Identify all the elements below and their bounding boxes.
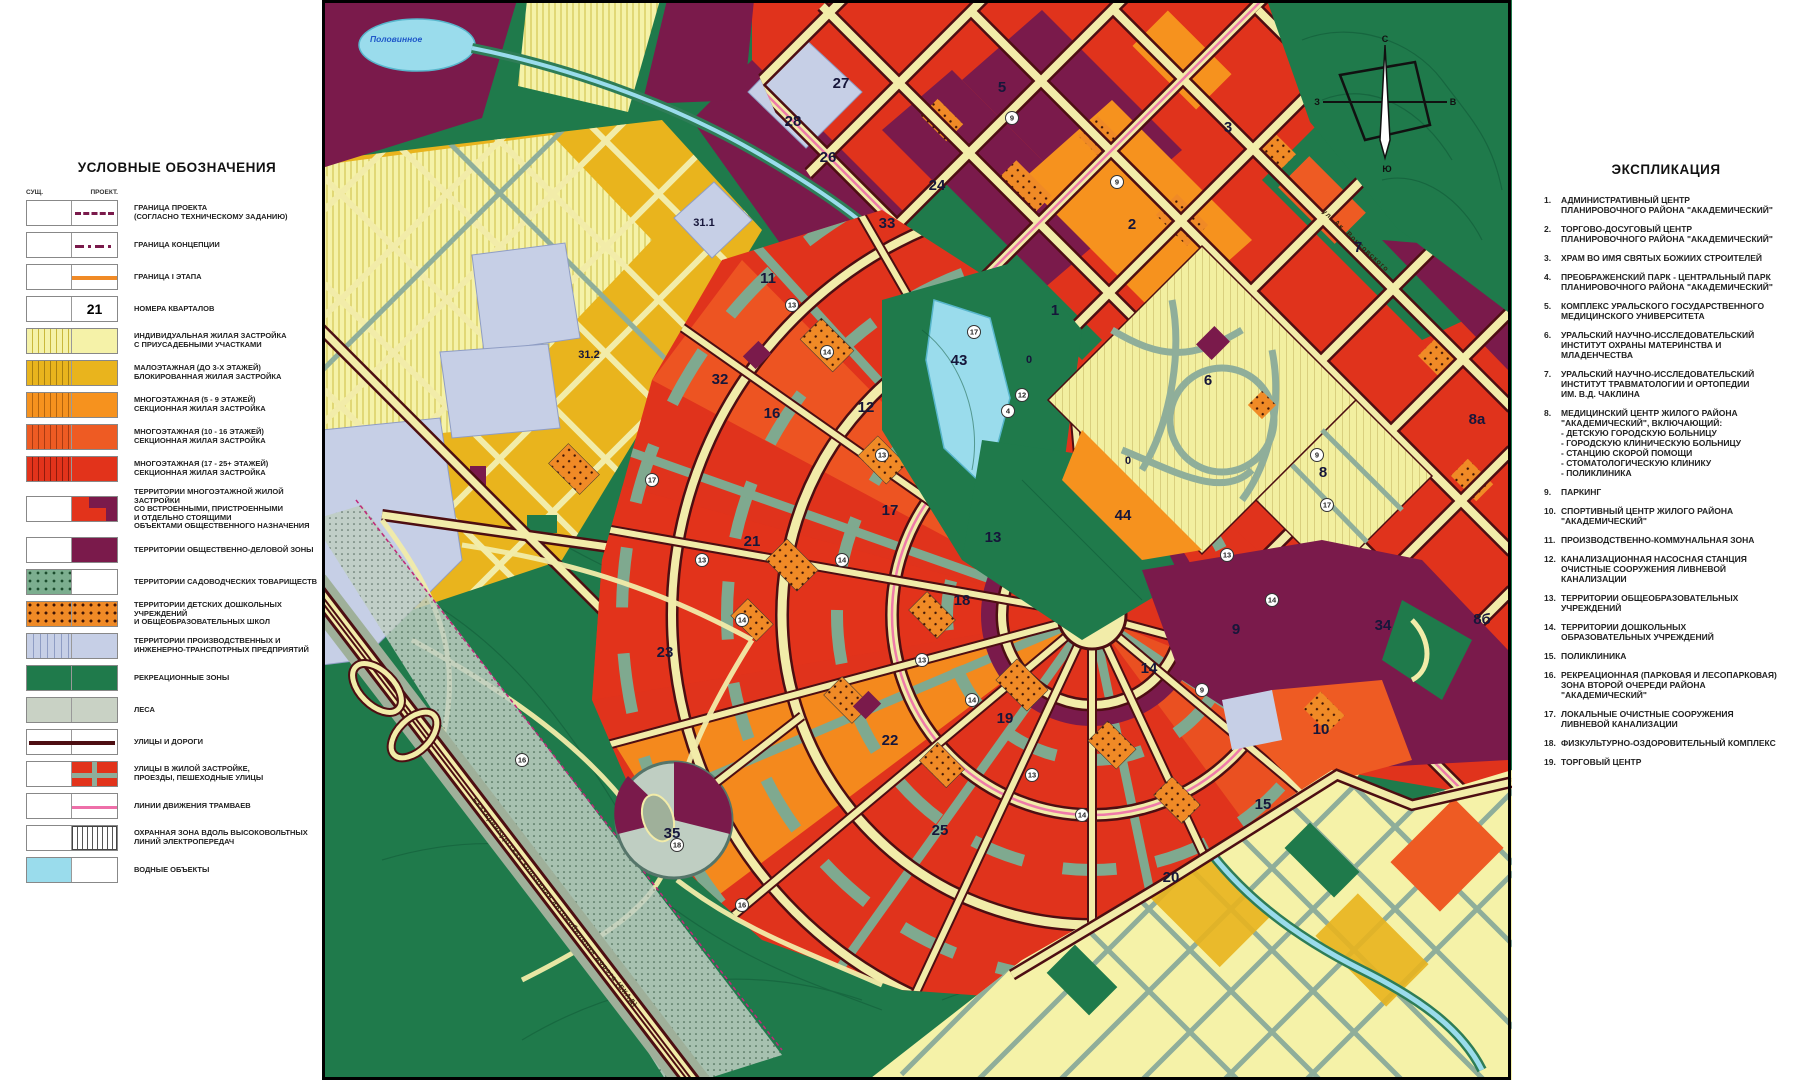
swatch-existing-half: [27, 762, 72, 786]
quarter-number-label: 43: [951, 352, 968, 369]
svg-text:16: 16: [738, 901, 746, 910]
svg-text:9: 9: [1115, 178, 1119, 187]
legend-swatch: [26, 729, 118, 755]
explication-item-number: 15.: [1544, 651, 1561, 661]
explication-item-number: 18.: [1544, 738, 1561, 748]
legend-item-label: ТЕРРИТОРИИ ОБЩЕСТВЕННО-ДЕЛОВОЙ ЗОНЫ: [134, 546, 318, 555]
swatch-project-half: [72, 329, 117, 353]
explication-item-text: ПАРКИНГ: [1561, 487, 1789, 497]
legend-item-label: НОМЕРА КВАРТАЛОВ: [134, 305, 318, 314]
legend-list: ГРАНИЦА ПРОЕКТА (СОГЛАСНО ТЕХНИЧЕСКОМУ З…: [0, 200, 322, 883]
quarter-number-label: 8б: [1473, 611, 1491, 628]
circle-marker: 9: [1196, 684, 1209, 697]
legend-item-label: УЛИЦЫ И ДОРОГИ: [134, 738, 318, 747]
swatch-existing-half: [27, 497, 72, 521]
legend-item-label: ТЕРРИТОРИИ ПРОИЗВОДСТВЕННЫХ И ИНЖЕНЕРНО-…: [134, 637, 318, 654]
swatch-sample-number: [72, 858, 117, 882]
quarter-number-label: 34: [1375, 617, 1392, 634]
explication-item-number: 17.: [1544, 709, 1561, 729]
circle-marker: 4: [1002, 405, 1015, 418]
explication-item-text: ПОЛИКЛИНИКА: [1561, 651, 1789, 661]
legend-item: РЕКРЕАЦИОННЫЕ ЗОНЫ: [26, 665, 318, 691]
quarter-number-label: 8: [1319, 464, 1327, 481]
swatch-project-half: [72, 538, 117, 562]
legend-item-label: ЛИНИИ ДВИЖЕНИЯ ТРАМВАЕВ: [134, 802, 318, 811]
circle-marker: 14: [1266, 594, 1279, 607]
explication-item: 8. МЕДИЦИНСКИЙ ЦЕНТР ЖИЛОГО РАЙОНА "АКАД…: [1544, 408, 1792, 478]
legend-item: ЛЕСА: [26, 697, 318, 723]
swatch-existing-half: [27, 329, 72, 353]
legend-item: ТЕРРИТОРИИ ПРОИЗВОДСТВЕННЫХ И ИНЖЕНЕРНО-…: [26, 633, 318, 659]
explication-item-text: УРАЛЬСКИЙ НАУЧНО-ИССЛЕДОВАТЕЛЬСКИЙ ИНСТИ…: [1561, 330, 1789, 360]
swatch-sample-number: [72, 457, 117, 481]
compass-west-label: З: [1314, 97, 1320, 107]
quarter-number-label: 24: [929, 177, 946, 194]
legend-item-label: МНОГОЭТАЖНАЯ (17 - 25+ ЭТАЖЕЙ) СЕКЦИОННА…: [134, 460, 318, 477]
swatch-existing-half: [27, 393, 72, 417]
legend-item-label: МНОГОЭТАЖНАЯ (10 - 16 ЭТАЖЕЙ) СЕКЦИОННАЯ…: [134, 428, 318, 445]
legend-item-label: ИНДИВИДУАЛЬНАЯ ЖИЛАЯ ЗАСТРОЙКА С ПРИУСАД…: [134, 332, 318, 349]
legend-item: ЛИНИИ ДВИЖЕНИЯ ТРАМВАЕВ: [26, 793, 318, 819]
explication-item: 18. ФИЗКУЛЬТУРНО-ОЗДОРОВИТЕЛЬНЫЙ КОМПЛЕК…: [1544, 738, 1792, 748]
explication-item-text: СПОРТИВНЫЙ ЦЕНТР ЖИЛОГО РАЙОНА "АКАДЕМИЧ…: [1561, 506, 1789, 526]
legend-swatch: [26, 761, 118, 787]
legend-swatch: [26, 569, 118, 595]
svg-text:9: 9: [1010, 114, 1014, 123]
circle-marker: 13: [1026, 769, 1039, 782]
explication-item-text: КОМПЛЕКС УРАЛЬСКОГО ГОСУДАРСТВЕННОГО МЕД…: [1561, 301, 1789, 321]
explication-item-text: АДМИНИСТРАТИВНЫЙ ЦЕНТР ПЛАНИРОВОЧНОГО РА…: [1561, 195, 1789, 215]
svg-text:16: 16: [518, 756, 526, 765]
legend-item-label: ТЕРРИТОРИИ ДЕТСКИХ ДОШКОЛЬНЫХ УЧРЕЖДЕНИЙ…: [134, 601, 318, 627]
explication-item-number: 19.: [1544, 757, 1561, 767]
swatch-existing-half: [27, 794, 72, 818]
swatch-sample-number: [72, 762, 117, 786]
legend-item-label: ЛЕСА: [134, 706, 318, 715]
svg-text:18: 18: [673, 841, 681, 850]
svg-text:14: 14: [968, 696, 977, 705]
explication-item-number: 4.: [1544, 272, 1561, 292]
explication-item: 15. ПОЛИКЛИНИКА: [1544, 651, 1792, 661]
swatch-existing-half: [27, 858, 72, 882]
quarter-number-label: 7: [1354, 239, 1362, 256]
quarter-number-label: 2: [1128, 216, 1136, 233]
circle-marker: 14: [736, 614, 749, 627]
explication-item: 14. ТЕРРИТОРИИ ДОШКОЛЬНЫХ ОБРАЗОВАТЕЛЬНЫ…: [1544, 622, 1792, 642]
swatch-project-half: [72, 201, 117, 225]
legend-item: ИНДИВИДУАЛЬНАЯ ЖИЛАЯ ЗАСТРОЙКА С ПРИУСАД…: [26, 328, 318, 354]
swatch-existing-half: [27, 265, 72, 289]
swatch-existing-half: [27, 538, 72, 562]
legend-item: УЛИЦЫ И ДОРОГИ: [26, 729, 318, 755]
quarter-number-label: 17: [882, 502, 899, 519]
explication-item-number: 3.: [1544, 253, 1561, 263]
swatch-sample-number: [72, 497, 117, 521]
swatch-existing-half: [27, 361, 72, 385]
swatch-existing-half: [27, 666, 72, 690]
quarter-number-label: 16: [764, 405, 781, 422]
svg-text:9: 9: [1200, 686, 1204, 695]
legend-item-label: ОХРАННАЯ ЗОНА ВДОЛЬ ВЫСОКОВОЛЬТНЫХ ЛИНИЙ…: [134, 829, 318, 846]
explication-item-text: ТОРГОВЫЙ ЦЕНТР: [1561, 757, 1789, 767]
swatch-sample-number: [72, 265, 117, 289]
svg-text:14: 14: [1268, 596, 1277, 605]
legend-item-label: ВОДНЫЕ ОБЪЕКТЫ: [134, 866, 318, 875]
legend-item: ГРАНИЦА ПРОЕКТА (СОГЛАСНО ТЕХНИЧЕСКОМУ З…: [26, 200, 318, 226]
swatch-existing-half: [27, 634, 72, 658]
explication-item-number: 14.: [1544, 622, 1561, 642]
quarter-number-label: 14: [1141, 660, 1158, 677]
swatch-sample-number: [72, 425, 117, 449]
swatch-project-half: [72, 265, 117, 289]
circle-marker: 14: [821, 346, 834, 359]
legend-swatch: 21: [26, 296, 118, 322]
swatch-existing-half: [27, 698, 72, 722]
svg-text:17: 17: [970, 328, 978, 337]
explication-item: 13. ТЕРРИТОРИИ ОБЩЕОБРАЗОВАТЕЛЬНЫХ УЧРЕЖ…: [1544, 593, 1792, 613]
circle-marker: 17: [968, 326, 981, 339]
explication-item-number: 6.: [1544, 330, 1561, 360]
explication-item-number: 1.: [1544, 195, 1561, 215]
quarter-number-label: 22: [882, 732, 899, 749]
quarter-number-label: 0: [1125, 455, 1131, 467]
swatch-project-half: [72, 497, 117, 521]
quarter-number-label: 5: [998, 79, 1006, 96]
circle-marker: 18: [671, 839, 684, 852]
explication-item-number: 16.: [1544, 670, 1561, 700]
legend-item-label: МНОГОЭТАЖНАЯ (5 - 9 ЭТАЖЕЙ) СЕКЦИОННАЯ Ж…: [134, 396, 318, 413]
compass-south-label: Ю: [1382, 164, 1391, 174]
explication-panel: ЭКСПЛИКАЦИЯ 1. АДМИНИСТРАТИВНЫЙ ЦЕНТР ПЛ…: [1540, 0, 1792, 1080]
swatch-existing-half: [27, 425, 72, 449]
swatch-project-half: [72, 634, 117, 658]
swatch-sample-number: [72, 794, 117, 818]
circle-marker: 14: [1076, 809, 1089, 822]
explication-item-number: 12.: [1544, 554, 1561, 584]
explication-item: 12. КАНАЛИЗАЦИОННАЯ НАСОСНАЯ СТАНЦИЯ ОЧИ…: [1544, 554, 1792, 584]
swatch-sample-number: [72, 393, 117, 417]
legend-item: ОХРАННАЯ ЗОНА ВДОЛЬ ВЫСОКОВОЛЬТНЫХ ЛИНИЙ…: [26, 825, 318, 851]
legend-item: МНОГОЭТАЖНАЯ (10 - 16 ЭТАЖЕЙ) СЕКЦИОННАЯ…: [26, 424, 318, 450]
legend-swatch: [26, 264, 118, 290]
legend-swatch: [26, 633, 118, 659]
legend-item: ТЕРРИТОРИИ МНОГОЭТАЖНОЙ ЖИЛОЙ ЗАСТРОЙКИ …: [26, 488, 318, 531]
legend-panel: УСЛОВНЫЕ ОБОЗНАЧЕНИЯ СУЩ. ПРОЕКТ. ГРАНИЦ…: [0, 0, 322, 1080]
swatch-existing-half: [27, 297, 72, 321]
circle-marker: 9: [1311, 449, 1324, 462]
legend-item-label: ГРАНИЦА I ЭТАПА: [134, 273, 318, 282]
master-plan-map: С В Ю З Половинное Екатеринбургская коль…: [322, 0, 1512, 1080]
explication-item-number: 11.: [1544, 535, 1561, 545]
explication-item-number: 13.: [1544, 593, 1561, 613]
quarter-number-label: 8а: [1469, 411, 1486, 428]
legend-swatch: [26, 825, 118, 851]
explication-title: ЭКСПЛИКАЦИЯ: [1540, 162, 1792, 177]
svg-text:13: 13: [1028, 771, 1036, 780]
legend-item-label: ГРАНИЦА КОНЦЕПЦИИ: [134, 241, 318, 250]
quarter-number-label: 28: [785, 113, 802, 130]
quarter-number-label: 31.2: [578, 349, 599, 361]
swatch-project-half: [72, 826, 117, 850]
lake-polovinnoye: [359, 19, 475, 71]
legend-swatch: [26, 697, 118, 723]
explication-item: 19. ТОРГОВЫЙ ЦЕНТР: [1544, 757, 1792, 767]
swatch-project-half: [72, 457, 117, 481]
circle-marker: 9: [1006, 112, 1019, 125]
explication-item-text: ТЕРРИТОРИИ ДОШКОЛЬНЫХ ОБРАЗОВАТЕЛЬНЫХ УЧ…: [1561, 622, 1789, 642]
legend-item: ГРАНИЦА I ЭТАПА: [26, 264, 318, 290]
quarter-number-label: 6: [1204, 372, 1212, 389]
explication-item-text: МЕДИЦИНСКИЙ ЦЕНТР ЖИЛОГО РАЙОНА "АКАДЕМИ…: [1561, 408, 1789, 478]
explication-item-text: КАНАЛИЗАЦИОННАЯ НАСОСНАЯ СТАНЦИЯ ОЧИСТНЫ…: [1561, 554, 1789, 584]
svg-text:17: 17: [1323, 501, 1331, 510]
svg-text:14: 14: [838, 556, 847, 565]
explication-item-text: ТЕРРИТОРИИ ОБЩЕОБРАЗОВАТЕЛЬНЫХ УЧРЕЖДЕНИ…: [1561, 593, 1789, 613]
swatch-project-half: [72, 666, 117, 690]
quarter-number-label: 20: [1163, 869, 1180, 886]
quarter-number-label: 0: [1026, 354, 1032, 366]
quarter-number-label: 32: [712, 371, 729, 388]
svg-text:13: 13: [1223, 551, 1231, 560]
explication-item: 1. АДМИНИСТРАТИВНЫЙ ЦЕНТР ПЛАНИРОВОЧНОГО…: [1544, 195, 1792, 215]
quarter-number-label: 11: [760, 270, 776, 287]
svg-text:17: 17: [648, 476, 656, 485]
legend-swatch: [26, 360, 118, 386]
explication-item-text: ЛОКАЛЬНЫЕ ОЧИСТНЫЕ СООРУЖЕНИЯ ЛИВНЕВОЙ К…: [1561, 709, 1789, 729]
circle-marker: 12: [1016, 389, 1029, 402]
explication-item-number: 9.: [1544, 487, 1561, 497]
legend-swatch: [26, 456, 118, 482]
svg-text:13: 13: [878, 451, 886, 460]
explication-item: 7. УРАЛЬСКИЙ НАУЧНО-ИССЛЕДОВАТЕЛЬСКИЙ ИН…: [1544, 369, 1792, 399]
explication-item-text: ПРЕОБРАЖЕНСКИЙ ПАРК - ЦЕНТРАЛЬНЫЙ ПАРК П…: [1561, 272, 1789, 292]
quarter-number-label: 10: [1313, 721, 1330, 738]
swatch-project-half: [72, 425, 117, 449]
swatch-sample-number: [72, 538, 117, 562]
legend-title: УСЛОВНЫЕ ОБОЗНАЧЕНИЯ: [40, 160, 314, 175]
legend-swatch: [26, 328, 118, 354]
quarter-number-label: 33: [879, 215, 896, 232]
swatch-project-half: [72, 393, 117, 417]
swatch-project-half: [72, 233, 117, 257]
swatch-sample-number: 21: [72, 297, 117, 321]
explication-item: 10. СПОРТИВНЫЙ ЦЕНТР ЖИЛОГО РАЙОНА "АКАД…: [1544, 506, 1792, 526]
explication-item-text: УРАЛЬСКИЙ НАУЧНО-ИССЛЕДОВАТЕЛЬСКИЙ ИНСТИ…: [1561, 369, 1789, 399]
quarter-number-label: 26: [820, 149, 837, 166]
explication-item: 9. ПАРКИНГ: [1544, 487, 1792, 497]
explication-item: 4. ПРЕОБРАЖЕНСКИЙ ПАРК - ЦЕНТРАЛЬНЫЙ ПАР…: [1544, 272, 1792, 292]
svg-text:14: 14: [823, 348, 832, 357]
swatch-existing-half: [27, 730, 72, 754]
circle-marker: 17: [646, 474, 659, 487]
legend-item: МНОГОЭТАЖНАЯ (17 - 25+ ЭТАЖЕЙ) СЕКЦИОННА…: [26, 456, 318, 482]
explication-item: 16. РЕКРЕАЦИОННАЯ (ПАРКОВАЯ И ЛЕСОПАРКОВ…: [1544, 670, 1792, 700]
quarter-number-label: 44: [1115, 507, 1132, 524]
circle-marker: 14: [836, 554, 849, 567]
explication-item: 2. ТОРГОВО-ДОСУГОВЫЙ ЦЕНТР ПЛАНИРОВОЧНОГ…: [1544, 224, 1792, 244]
legend-item: УЛИЦЫ В ЖИЛОЙ ЗАСТРОЙКЕ, ПРОЕЗДЫ, ПЕШЕХО…: [26, 761, 318, 787]
swatch-existing-half: [27, 233, 72, 257]
swatch-project-half: [72, 794, 117, 818]
swatch-project-half: [72, 570, 117, 594]
explication-item-number: 8.: [1544, 408, 1561, 478]
quarter-number-label: 31.1: [693, 217, 714, 229]
circle-marker: 13: [696, 554, 709, 567]
swatch-project-half: [72, 730, 117, 754]
legend-swatch: [26, 392, 118, 418]
swatch-sample-number: [72, 730, 117, 754]
explication-item: 6. УРАЛЬСКИЙ НАУЧНО-ИССЛЕДОВАТЕЛЬСКИЙ ИН…: [1544, 330, 1792, 360]
legend-col-project: ПРОЕКТ.: [91, 189, 119, 196]
circle-marker: 16: [736, 899, 749, 912]
compass-east-label: В: [1450, 97, 1457, 107]
swatch-project-half: [72, 602, 117, 626]
swatch-existing-half: [27, 826, 72, 850]
quarter-number-label: 27: [833, 75, 850, 92]
swatch-existing-half: [27, 602, 72, 626]
explication-item-text: ТОРГОВО-ДОСУГОВЫЙ ЦЕНТР ПЛАНИРОВОЧНОГО Р…: [1561, 224, 1789, 244]
quarter-number-label: 9: [1232, 621, 1240, 638]
circle-marker: 9: [1111, 176, 1124, 189]
swatch-sample-number: [72, 201, 117, 225]
explication-item-number: 10.: [1544, 506, 1561, 526]
explication-item: 5. КОМПЛЕКС УРАЛЬСКОГО ГОСУДАРСТВЕННОГО …: [1544, 301, 1792, 321]
swatch-sample-number: [72, 602, 117, 626]
legend-swatch: [26, 665, 118, 691]
swatch-sample-number: [72, 666, 117, 690]
lake-name-label: Половинное: [370, 34, 422, 44]
legend-item: ТЕРРИТОРИИ ДЕТСКИХ ДОШКОЛЬНЫХ УЧРЕЖДЕНИЙ…: [26, 601, 318, 627]
svg-text:12: 12: [1018, 391, 1026, 400]
quarter-number-label: 21: [744, 533, 761, 550]
circle-marker: 13: [1221, 549, 1234, 562]
svg-text:14: 14: [1078, 811, 1087, 820]
compass-north-label: С: [1382, 34, 1389, 44]
svg-text:13: 13: [698, 556, 706, 565]
quarter-number-label: 13: [985, 529, 1002, 546]
swatch-sample-number: [72, 698, 117, 722]
map-canvas: С В Ю З Половинное Екатеринбургская коль…: [322, 0, 1512, 1080]
swatch-project-half: [72, 698, 117, 722]
explication-item-number: 7.: [1544, 369, 1561, 399]
legend-swatch: [26, 857, 118, 883]
circle-marker: 13: [916, 654, 929, 667]
svg-text:13: 13: [788, 301, 796, 310]
explication-item: 11. ПРОИЗВОДСТВЕННО-КОММУНАЛЬНАЯ ЗОНА: [1544, 535, 1792, 545]
legend-item: МАЛОЭТАЖНАЯ (ДО 3-Х ЭТАЖЕЙ) БЛОКИРОВАННА…: [26, 360, 318, 386]
explication-list: 1. АДМИНИСТРАТИВНЫЙ ЦЕНТР ПЛАНИРОВОЧНОГО…: [1540, 195, 1792, 767]
swatch-project-half: [72, 762, 117, 786]
swatch-sample-number: [72, 570, 117, 594]
swatch-existing-half: [27, 570, 72, 594]
quarter-number-label: 12: [858, 399, 875, 416]
explication-item-text: ПРОИЗВОДСТВЕННО-КОММУНАЛЬНАЯ ЗОНА: [1561, 535, 1789, 545]
svg-text:14: 14: [738, 616, 747, 625]
swatch-sample-number: [72, 233, 117, 257]
quarter-number-label: 25: [932, 822, 949, 839]
legend-swatch: [26, 200, 118, 226]
explication-item-text: ФИЗКУЛЬТУРНО-ОЗДОРОВИТЕЛЬНЫЙ КОМПЛЕКС: [1561, 738, 1789, 748]
swatch-project-half: [72, 361, 117, 385]
circle-marker: 14: [966, 694, 979, 707]
swatch-sample-number: [72, 634, 117, 658]
quarter-number-label: 3: [1224, 119, 1232, 136]
circle-marker: 13: [876, 449, 889, 462]
legend-column-headers: СУЩ. ПРОЕКТ.: [26, 189, 118, 196]
quarter-number-label: 19: [997, 710, 1014, 727]
legend-swatch: [26, 496, 118, 522]
legend-swatch: [26, 793, 118, 819]
legend-swatch: [26, 601, 118, 627]
legend-item: ТЕРРИТОРИИ САДОВОДЧЕСКИХ ТОВАРИЩЕСТВ: [26, 569, 318, 595]
legend-col-existing: СУЩ.: [26, 189, 43, 196]
legend-item: ТЕРРИТОРИИ ОБЩЕСТВЕННО-ДЕЛОВОЙ ЗОНЫ: [26, 537, 318, 563]
legend-item: МНОГОЭТАЖНАЯ (5 - 9 ЭТАЖЕЙ) СЕКЦИОННАЯ Ж…: [26, 392, 318, 418]
legend-item-label: МАЛОЭТАЖНАЯ (ДО 3-Х ЭТАЖЕЙ) БЛОКИРОВАННА…: [134, 364, 318, 381]
swatch-existing-half: [27, 201, 72, 225]
circle-marker: 13: [786, 299, 799, 312]
circle-marker: 17: [1321, 499, 1334, 512]
swatch-project-half: 21: [72, 297, 117, 321]
circle-marker: 16: [516, 754, 529, 767]
legend-item-label: ТЕРРИТОРИИ МНОГОЭТАЖНОЙ ЖИЛОЙ ЗАСТРОЙКИ …: [134, 488, 318, 531]
swatch-sample-number: [72, 329, 117, 353]
legend-swatch: [26, 232, 118, 258]
explication-item-number: 5.: [1544, 301, 1561, 321]
legend-item: 21 НОМЕРА КВАРТАЛОВ: [26, 296, 318, 322]
swatch-project-half: [72, 858, 117, 882]
svg-text:13: 13: [918, 656, 926, 665]
legend-item-label: РЕКРЕАЦИОННЫЕ ЗОНЫ: [134, 674, 318, 683]
legend-item-label: ТЕРРИТОРИИ САДОВОДЧЕСКИХ ТОВАРИЩЕСТВ: [134, 578, 318, 587]
explication-item-text: РЕКРЕАЦИОННАЯ (ПАРКОВАЯ И ЛЕСОПАРКОВАЯ) …: [1561, 670, 1789, 700]
swatch-sample-number: [72, 361, 117, 385]
explication-item: 3. ХРАМ ВО ИМЯ СВЯТЫХ БОЖИИХ СТРОИТЕЛЕЙ: [1544, 253, 1792, 263]
quarter-number-label: 18: [954, 592, 971, 609]
swatch-existing-half: [27, 457, 72, 481]
legend-item: ВОДНЫЕ ОБЪЕКТЫ: [26, 857, 318, 883]
explication-item: 17. ЛОКАЛЬНЫЕ ОЧИСТНЫЕ СООРУЖЕНИЯ ЛИВНЕВ…: [1544, 709, 1792, 729]
legend-item-label: ГРАНИЦА ПРОЕКТА (СОГЛАСНО ТЕХНИЧЕСКОМУ З…: [134, 204, 318, 221]
legend-item-label: УЛИЦЫ В ЖИЛОЙ ЗАСТРОЙКЕ, ПРОЕЗДЫ, ПЕШЕХО…: [134, 765, 318, 782]
explication-item-number: 2.: [1544, 224, 1561, 244]
svg-text:9: 9: [1315, 451, 1319, 460]
legend-swatch: [26, 537, 118, 563]
quarter-number-label: 1: [1051, 302, 1059, 319]
legend-swatch: [26, 424, 118, 450]
quarter-number-label: 15: [1255, 796, 1272, 813]
explication-item-text: ХРАМ ВО ИМЯ СВЯТЫХ БОЖИИХ СТРОИТЕЛЕЙ: [1561, 253, 1789, 263]
legend-item: ГРАНИЦА КОНЦЕПЦИИ: [26, 232, 318, 258]
swatch-sample-number: [73, 827, 116, 849]
quarter-number-label: 23: [657, 644, 674, 661]
